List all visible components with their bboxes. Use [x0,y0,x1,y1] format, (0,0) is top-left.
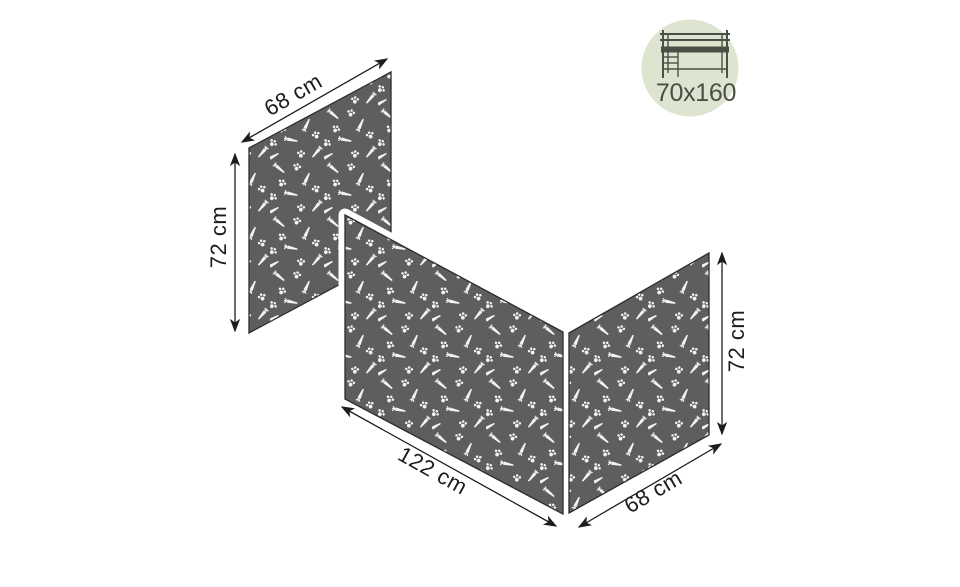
dimension-label: 72 cm [724,310,749,372]
dimension-label: 72 cm [206,206,231,268]
diagram-canvas: 68 cm 72 cm 122 cm 68 cm 72 cm [0,0,960,587]
bed-size-label: 70x160 [656,79,736,107]
product-dimension-diagram: 68 cm 72 cm 122 cm 68 cm 72 cm [0,0,960,587]
bed-size-badge: 70x160 [642,20,739,117]
